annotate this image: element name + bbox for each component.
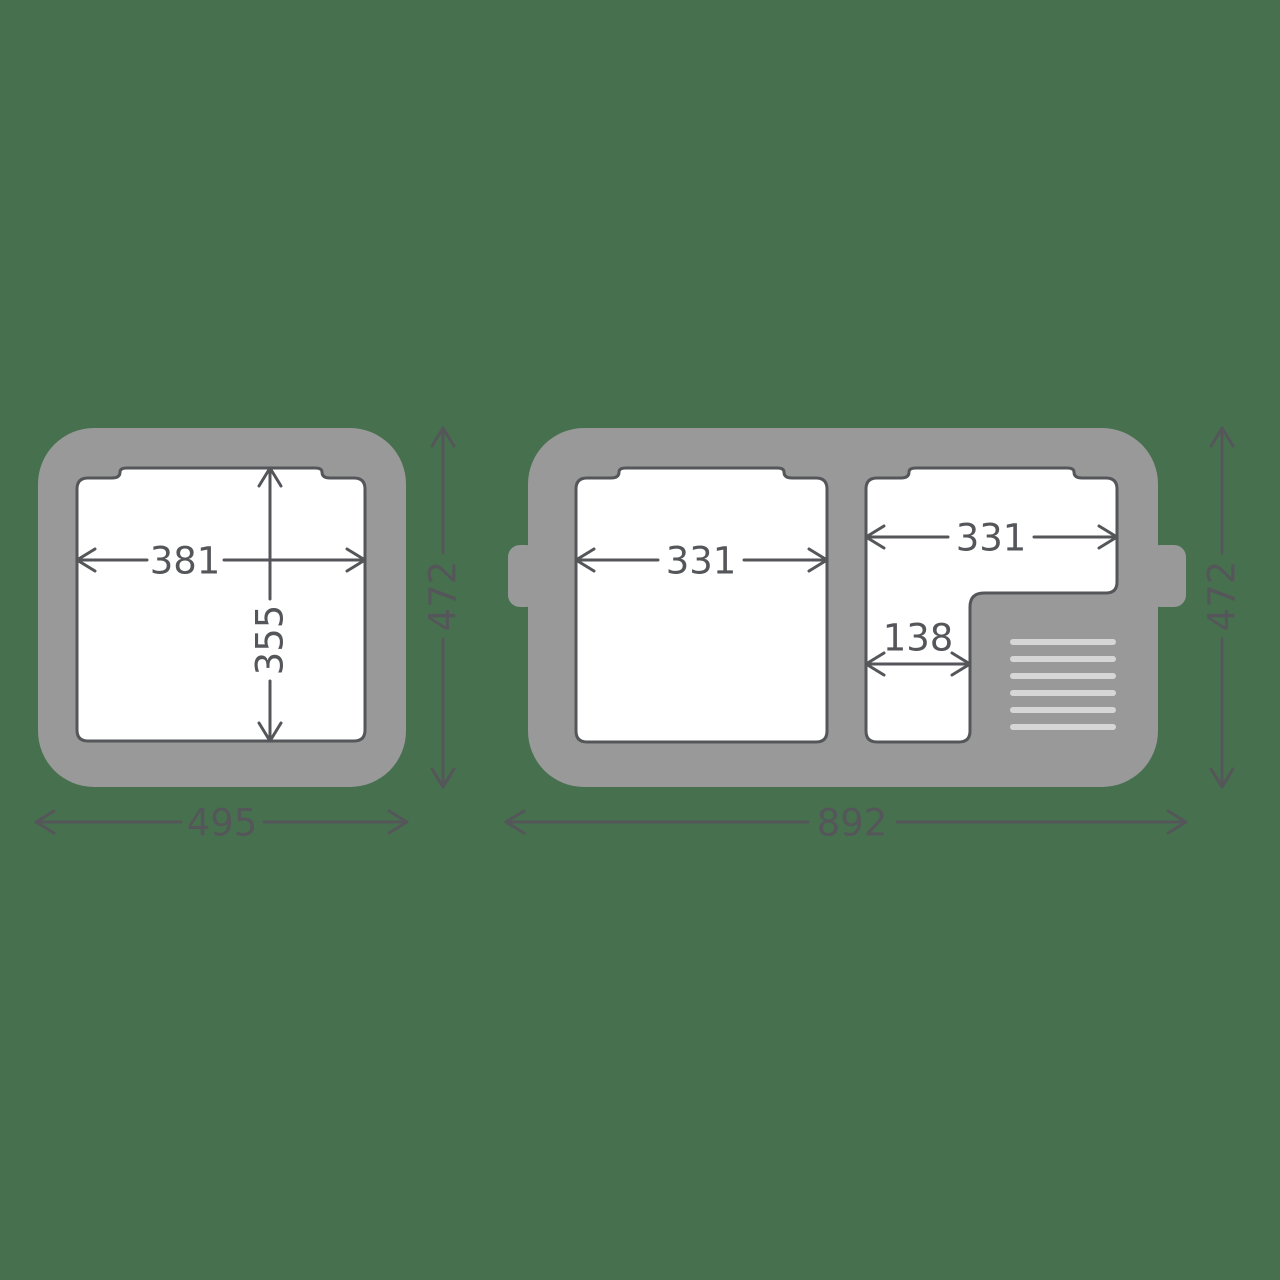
left-opening-depth-label: 355: [249, 605, 292, 676]
right-overall-depth-label: 472: [1201, 561, 1244, 632]
right-unit-diagram: 331 331 138: [506, 428, 1244, 845]
right-left-compartment-width-label: 331: [666, 540, 737, 583]
dim-left-overall-width: 495: [36, 802, 407, 845]
left-overall-width-label: 495: [187, 802, 258, 845]
dim-right-overall-depth: 472: [1201, 428, 1244, 787]
diagram-canvas: 381 355 472: [0, 0, 1280, 1280]
right-overall-width-label: 892: [817, 802, 888, 845]
left-unit-diagram: 381 355 472: [36, 428, 465, 845]
right-narrow-column-width-label: 138: [883, 617, 954, 660]
left-opening-width-label: 381: [150, 540, 221, 583]
left-unit-opening: [77, 468, 365, 741]
left-overall-depth-label: 472: [422, 561, 465, 632]
dim-left-overall-depth: 472: [422, 428, 465, 787]
dimension-diagram: 381 355 472: [0, 0, 1280, 1280]
right-unit-left-compartment: [576, 468, 827, 742]
right-right-compartment-width-label: 331: [956, 517, 1027, 560]
dim-right-overall-width: 892: [506, 802, 1186, 845]
